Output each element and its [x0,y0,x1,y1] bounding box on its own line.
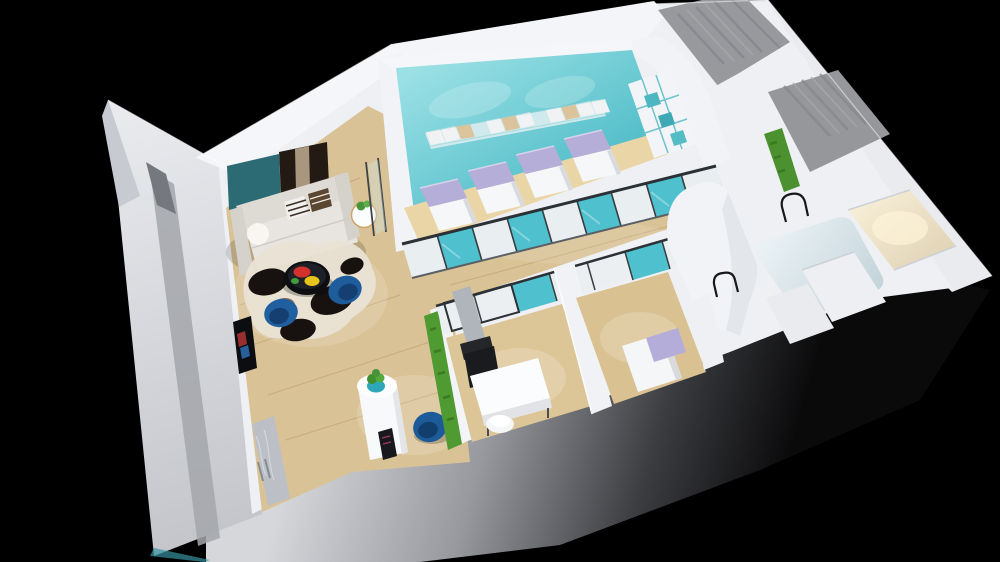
white-cushion [247,223,269,245]
white-stool-top [490,415,510,427]
wall-art-light-streak [295,146,310,191]
floorplan-render [0,0,1000,562]
yellow-plate [305,276,320,286]
render-canvas [0,0,1000,562]
red-plate [294,267,311,278]
green-dish [291,278,299,284]
warm-light-glow [872,211,928,245]
pedestal-plant [372,369,380,377]
